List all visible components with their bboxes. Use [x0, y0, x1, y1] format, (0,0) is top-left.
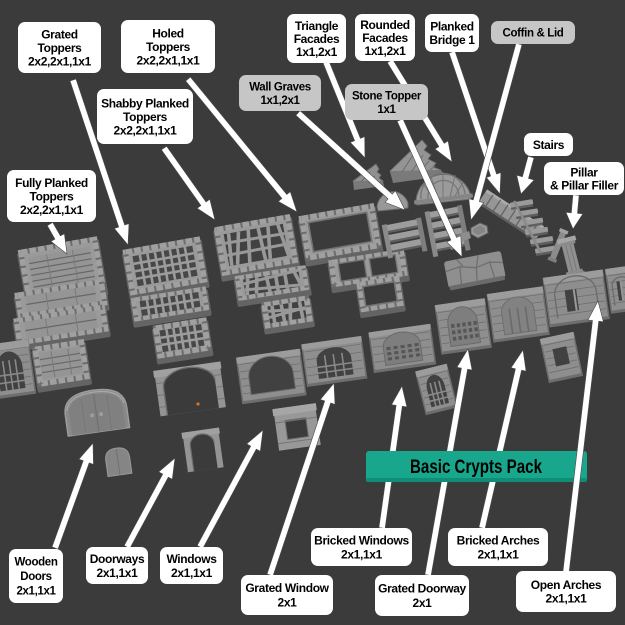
svg-text:2x1: 2x1: [278, 596, 298, 610]
svg-text:1x1: 1x1: [377, 104, 396, 116]
svg-text:Coffin & Lid: Coffin & Lid: [503, 28, 564, 40]
svg-text:Bricked Windows: Bricked Windows: [314, 533, 409, 547]
svg-text:Grated Doorway: Grated Doorway: [378, 582, 466, 596]
svg-text:1x1,2x1: 1x1,2x1: [365, 44, 407, 58]
svg-text:Wooden: Wooden: [14, 557, 57, 569]
svg-text:Toppers: Toppers: [146, 40, 191, 54]
svg-text:Doorways: Doorways: [90, 552, 145, 566]
svg-text:2x2,2x1,1x1: 2x2,2x1,1x1: [137, 53, 201, 67]
svg-text:Pillar: Pillar: [570, 165, 598, 179]
svg-text:Fully Planked: Fully Planked: [15, 176, 88, 190]
svg-text:2x1,1x1: 2x1,1x1: [16, 586, 56, 598]
svg-text:1x1,2x1: 1x1,2x1: [260, 95, 300, 107]
svg-text:Stairs: Stairs: [533, 138, 565, 152]
svg-text:Toppers: Toppers: [30, 189, 75, 203]
svg-text:Toppers: Toppers: [38, 41, 83, 55]
svg-text:2x1,1x1: 2x1,1x1: [171, 566, 213, 580]
svg-text:Facades: Facades: [294, 32, 340, 46]
svg-text:Toppers: Toppers: [123, 110, 168, 124]
svg-text:Holed: Holed: [152, 26, 184, 40]
svg-text:& Pillar Filler: & Pillar Filler: [550, 178, 619, 192]
svg-text:2x2,2x1,1x1: 2x2,2x1,1x1: [28, 54, 92, 68]
svg-text:Windows: Windows: [166, 552, 217, 566]
svg-text:1x1,2x1: 1x1,2x1: [296, 45, 338, 59]
svg-text:2x1,1x1: 2x1,1x1: [478, 547, 520, 561]
svg-text:2x1: 2x1: [413, 596, 433, 610]
svg-text:Bricked Arches: Bricked Arches: [457, 533, 540, 547]
svg-text:Wall Graves: Wall Graves: [249, 81, 311, 93]
svg-text:2x1,1x1: 2x1,1x1: [546, 592, 588, 606]
svg-text:Grated Window: Grated Window: [245, 581, 329, 595]
svg-text:Basic Crypts Pack: Basic Crypts Pack: [410, 457, 542, 478]
svg-text:Stone Topper: Stone Topper: [352, 90, 422, 102]
svg-text:Doors: Doors: [20, 571, 51, 583]
svg-text:Shabby Planked: Shabby Planked: [101, 96, 189, 110]
svg-text:Facades: Facades: [362, 31, 408, 45]
svg-text:Planked: Planked: [430, 20, 474, 34]
svg-text:2x2,2x1,1x1: 2x2,2x1,1x1: [20, 203, 84, 217]
svg-text:Grated: Grated: [41, 27, 78, 41]
svg-text:2x1,1x1: 2x1,1x1: [341, 547, 383, 561]
svg-text:2x2,2x1,1x1: 2x2,2x1,1x1: [114, 123, 178, 137]
svg-text:2x1,1x1: 2x1,1x1: [97, 566, 139, 580]
svg-text:Open Arches: Open Arches: [531, 578, 602, 592]
svg-text:Rounded: Rounded: [360, 18, 410, 32]
svg-text:Bridge 1: Bridge 1: [429, 33, 475, 47]
svg-text:Triangle: Triangle: [295, 19, 339, 33]
